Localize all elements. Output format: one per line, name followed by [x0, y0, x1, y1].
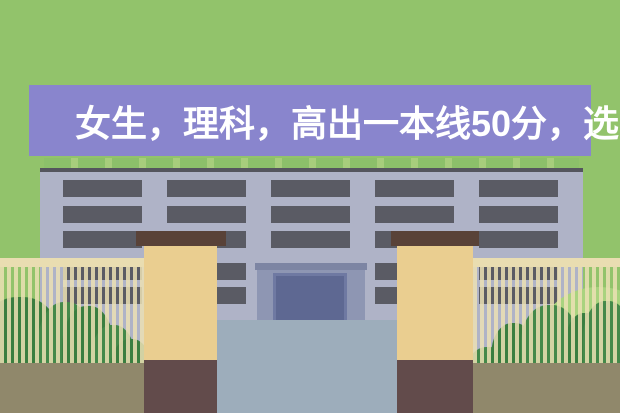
gate-pillar-left — [144, 246, 217, 360]
entrance-plaza — [217, 320, 397, 413]
title-banner: 女生，理科，高出一本线50分，选 — [29, 85, 591, 156]
gate-pillar-right-cap — [391, 231, 479, 246]
school-gate-illustration: 女生，理科，高出一本线50分，选 — [0, 0, 620, 413]
window-group — [479, 206, 558, 223]
building-roof-hedge — [44, 158, 579, 168]
ground-right — [473, 363, 620, 413]
fence-bars — [0, 258, 145, 363]
window-group — [63, 206, 142, 223]
window-group — [63, 231, 142, 248]
fence-right — [473, 258, 620, 363]
window-group — [479, 180, 558, 197]
fence-rail — [473, 258, 620, 267]
entrance-porch-lintel — [255, 263, 367, 270]
fence-left — [0, 258, 145, 363]
gate-pillar-left-base — [144, 360, 217, 413]
window-group — [167, 206, 246, 223]
fence-bars — [473, 258, 620, 363]
window-group — [271, 180, 350, 197]
ground-left — [0, 363, 144, 413]
window-group — [167, 180, 246, 197]
window-group — [375, 206, 454, 223]
window-group — [271, 206, 350, 223]
entrance-door — [273, 273, 347, 320]
gate-pillar-right — [397, 246, 473, 360]
gate-pillar-left-cap — [136, 231, 226, 246]
fence-rail — [0, 258, 145, 267]
gate-pillar-right-base — [397, 360, 473, 413]
window-group — [271, 231, 350, 248]
window-group — [63, 180, 142, 197]
window-group — [479, 231, 558, 248]
window-group — [375, 180, 454, 197]
banner-text: 女生，理科，高出一本线50分，选 — [75, 95, 619, 147]
